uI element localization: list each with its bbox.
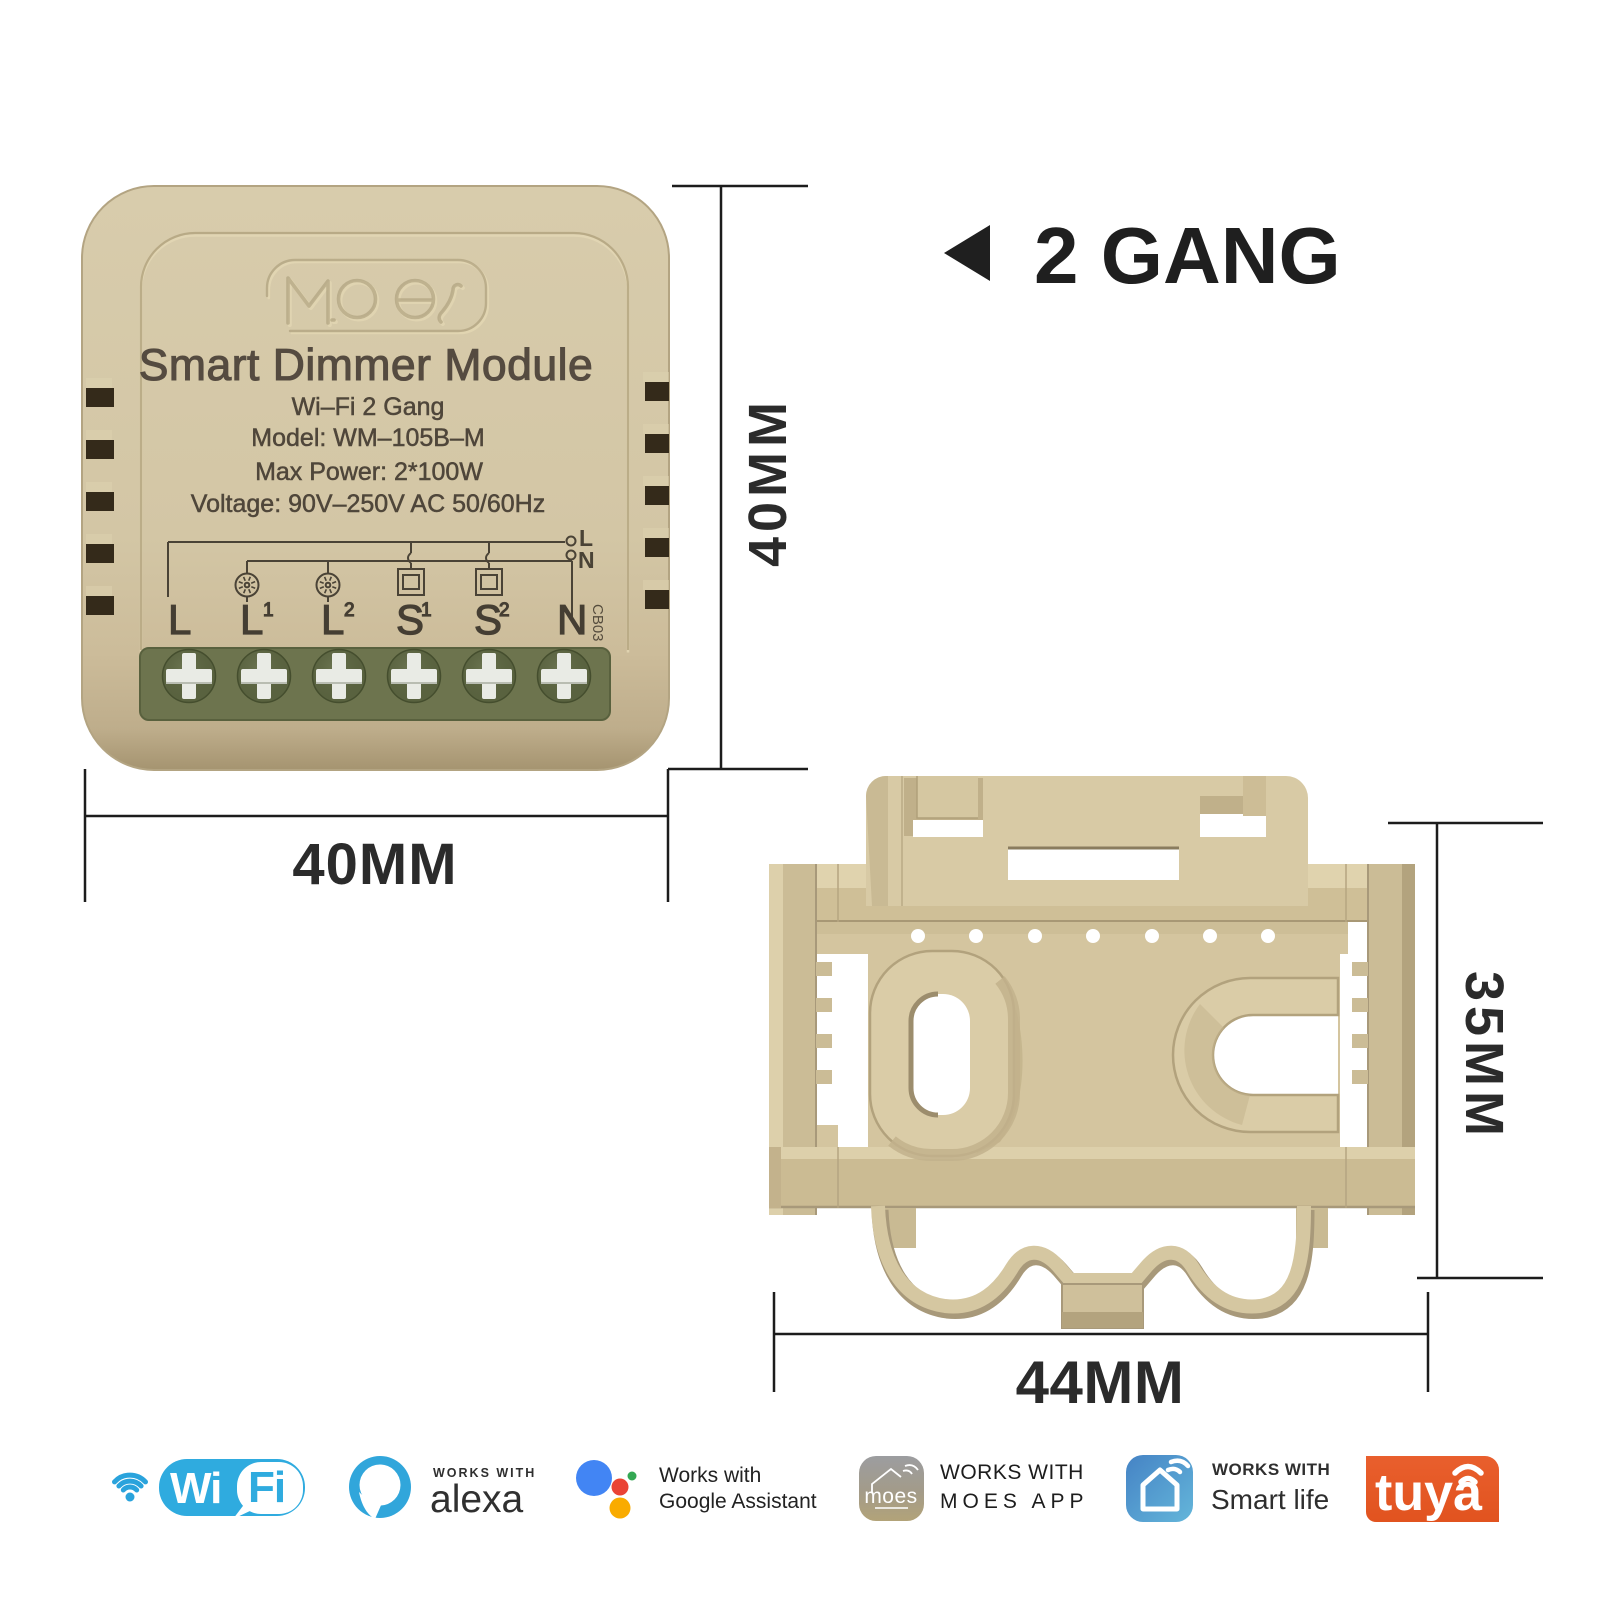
svg-text:Works with: Works with [659,1464,761,1487]
svg-text:moes: moes [864,1485,917,1508]
svg-text:CB03: CB03 [589,604,606,642]
svg-text:2: 2 [499,600,510,621]
svg-text:N: N [557,596,587,643]
svg-text:Voltage: 90V–250V AC 50/60Hz: Voltage: 90V–250V AC 50/60Hz [191,490,545,518]
svg-text:35MM: 35MM [1454,971,1514,1141]
svg-text:N: N [578,547,595,573]
svg-text:Smart life: Smart life [1211,1484,1329,1515]
svg-text:Smart Dimmer Module: Smart Dimmer Module [139,341,594,390]
svg-text:1: 1 [263,600,274,621]
svg-text:Max Power: 2*100W: Max Power: 2*100W [255,458,483,486]
svg-text:MOES APP: MOES APP [940,1490,1089,1513]
svg-text:WORKS WITH: WORKS WITH [940,1461,1084,1484]
svg-text:Wi–Fi 2 Gang: Wi–Fi 2 Gang [292,393,445,421]
svg-text:tuya: tuya [1375,1464,1483,1522]
svg-text:L: L [321,596,344,643]
svg-text:S: S [396,596,424,643]
svg-text:40MM: 40MM [292,832,457,897]
svg-text:Model: WM–105B–M: Model: WM–105B–M [251,424,484,452]
svg-text:1: 1 [421,600,432,621]
svg-text:L: L [168,596,191,643]
svg-text:S: S [474,596,502,643]
svg-text:44MM: 44MM [1016,1349,1185,1416]
svg-text:Fi: Fi [248,1463,285,1512]
svg-text:Google Assistant: Google Assistant [659,1490,817,1513]
svg-text:Wi: Wi [170,1464,221,1513]
svg-text:40MM: 40MM [738,397,798,567]
svg-text:2 GANG: 2 GANG [1034,211,1341,300]
svg-text:WORKS WITH: WORKS WITH [1212,1460,1330,1479]
svg-text:L: L [240,596,263,643]
svg-text:2: 2 [344,600,355,621]
svg-text:alexa: alexa [430,1478,524,1521]
